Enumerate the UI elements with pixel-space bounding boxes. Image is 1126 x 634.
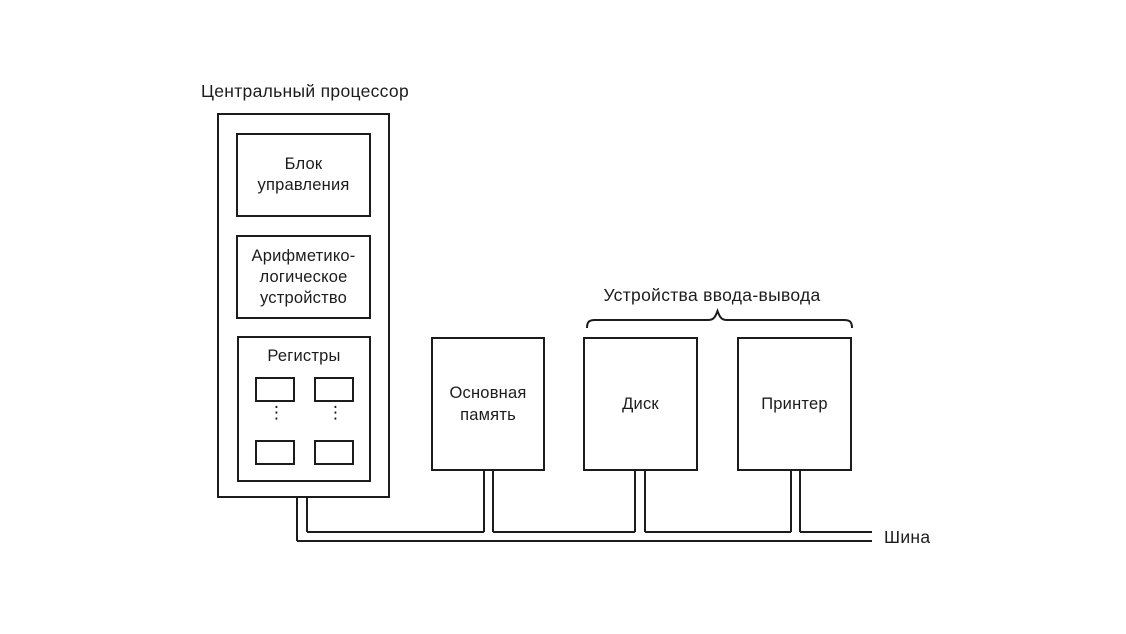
printer-box: Принтер [737, 337, 852, 471]
register-box [314, 440, 354, 465]
bus-label: Шина [884, 527, 930, 548]
register-box [314, 377, 354, 402]
register-box [255, 440, 295, 465]
disk-label: Диск [622, 394, 659, 415]
vertical-ellipsis-icon: ⋮ [327, 403, 341, 423]
diagram-lines-layer [0, 0, 1126, 634]
io-devices-group-label: Устройства ввода-вывода [597, 285, 827, 306]
cpu-group-label: Центральный процессор [189, 81, 421, 102]
control-unit-label-line1: Блок [285, 154, 323, 175]
alu-label-line1: Арифметико- [252, 246, 356, 267]
vertical-ellipsis-icon: ⋮ [268, 403, 282, 423]
alu-label-line3: устройство [260, 288, 347, 309]
block-diagram-canvas: Центральный процессор Блок управления Ар… [0, 0, 1126, 634]
alu-box: Арифметико- логическое устройство [236, 235, 371, 319]
main-memory-label-line2: память [460, 404, 516, 426]
registers-title: Регистры [239, 347, 369, 366]
alu-label-line2: логическое [259, 267, 347, 288]
registers-box: Регистры ⋮ ⋮ [237, 336, 371, 482]
control-unit-box: Блок управления [236, 133, 371, 217]
io-devices-brace [587, 311, 852, 328]
main-memory-box: Основная память [431, 337, 545, 471]
main-memory-label-line1: Основная [450, 382, 527, 404]
printer-label: Принтер [761, 394, 828, 415]
register-box [255, 377, 295, 402]
control-unit-label-line2: управления [258, 175, 350, 196]
disk-box: Диск [583, 337, 698, 471]
